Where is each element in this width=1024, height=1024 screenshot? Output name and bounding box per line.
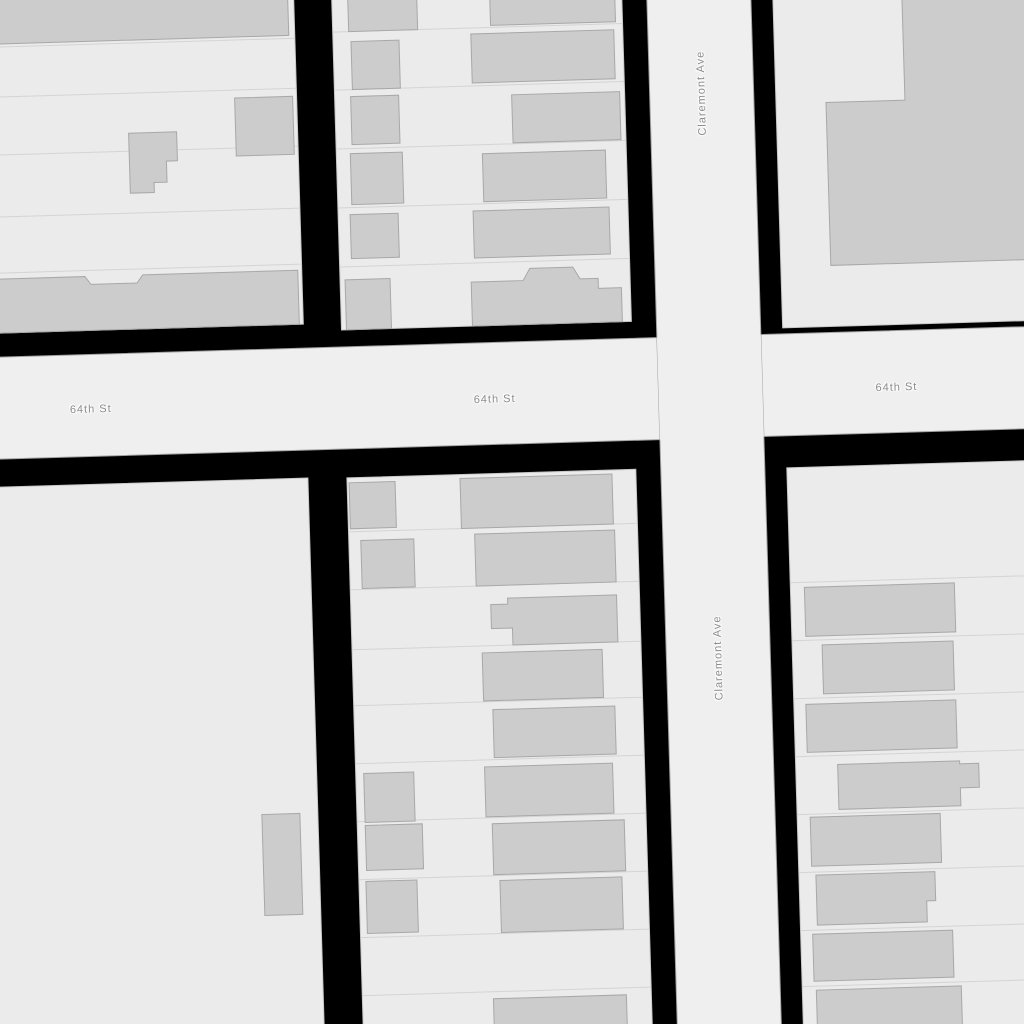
building-footprint (349, 481, 396, 528)
map-viewport[interactable]: 64th St 64th St 64th St Claremont Ave Cl… (0, 0, 1024, 1024)
building-footprint (365, 824, 423, 871)
building-footprint (804, 583, 955, 636)
building-footprint (350, 152, 403, 205)
building-footprint (816, 986, 963, 1024)
building-footprint (460, 474, 613, 528)
building-footprint (347, 0, 418, 32)
street-claremont-ave (645, 0, 783, 1024)
map-rotation-layer: 64th St 64th St 64th St Claremont Ave Cl… (0, 0, 1024, 1024)
building-footprint (471, 30, 615, 83)
building-footprint (822, 641, 954, 694)
building-footprint (816, 872, 936, 926)
building-footprint (493, 706, 616, 758)
building-footprint (475, 530, 616, 586)
street-intersection (657, 335, 764, 440)
building-footprint (806, 700, 957, 752)
street-label-64th-st-west: 64th St (70, 403, 112, 416)
building-footprint (366, 880, 419, 933)
building-footprint (235, 96, 295, 156)
building-footprint (351, 95, 400, 144)
street-label-64th-st-center: 64th St (474, 393, 516, 406)
building-footprint (364, 772, 415, 822)
building-footprint (813, 930, 954, 981)
building-footprint (361, 539, 415, 589)
building-footprint (492, 820, 625, 875)
building-footprint (489, 0, 616, 25)
building-footprint (473, 207, 610, 258)
building-footprint (493, 995, 628, 1024)
building-footprint (350, 213, 399, 258)
building-footprint (838, 760, 980, 809)
building-footprint (262, 813, 303, 915)
building-footprint (810, 813, 941, 866)
map-canvas (0, 0, 1024, 1024)
building-footprint (345, 279, 391, 330)
street-label-claremont-ave-north: Claremont Ave (694, 51, 709, 136)
building-footprint (500, 877, 623, 933)
street-label-claremont-ave-south: Claremont Ave (711, 615, 726, 700)
building-footprint (0, 270, 299, 334)
building-footprint (512, 92, 621, 143)
street-label-64th-st-east: 64th St (875, 381, 917, 394)
city-block-southwest (0, 478, 325, 1024)
building-footprint (482, 150, 606, 202)
building-footprint (485, 763, 614, 817)
building-footprint (482, 649, 603, 701)
building-footprint (351, 40, 400, 89)
